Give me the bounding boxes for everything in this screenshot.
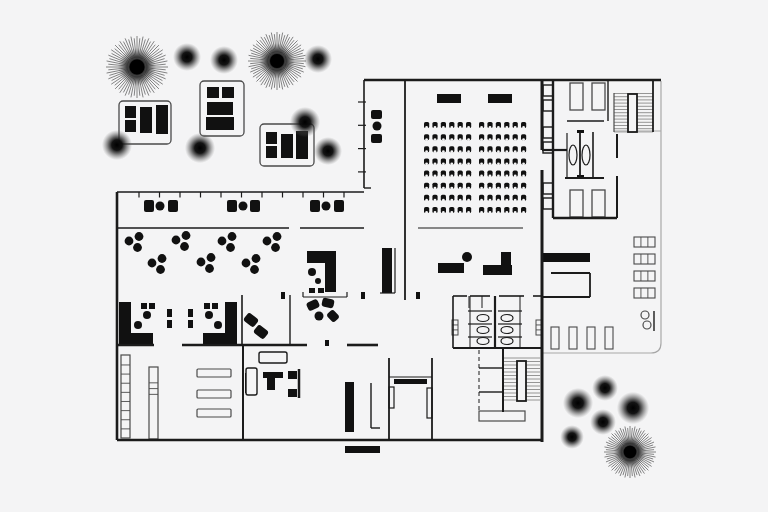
auditorium-seat-notch (467, 138, 470, 141)
toilet (477, 327, 489, 334)
office-desk (267, 378, 275, 390)
auditorium-seat-notch (505, 126, 508, 129)
trefoil-table (135, 232, 144, 241)
outdoor-armchair (266, 146, 277, 158)
auditorium-seat-notch (514, 138, 517, 141)
tree-canopy (314, 137, 342, 165)
patio-table (634, 237, 655, 247)
lounge-table (456, 266, 463, 273)
stage-table (437, 94, 461, 103)
patio-stool (643, 321, 651, 329)
auditorium-seat-notch (450, 211, 453, 214)
closet (543, 198, 553, 209)
auditorium-seat-notch (522, 138, 525, 141)
corridor-chair (334, 200, 344, 212)
l-sofa (119, 333, 153, 344)
trefoil-table (182, 231, 191, 240)
auditorium-seat-notch (434, 187, 437, 190)
trefoil-table (205, 264, 214, 273)
auditorium-seat-notch (459, 187, 462, 190)
auditorium-seat-notch (505, 199, 508, 202)
auditorium-seat-notch (459, 162, 462, 165)
tree-canopy (560, 425, 584, 449)
storage-shelf (121, 355, 130, 438)
office-chair (288, 389, 297, 397)
trefoil-table (156, 265, 165, 274)
trefoil-table (226, 243, 235, 252)
auditorium-seat-notch (514, 175, 517, 178)
auditorium-seat-notch (434, 211, 437, 214)
lounge-table (462, 252, 472, 262)
auditorium-seat-notch (434, 150, 437, 153)
auditorium-seat-notch (467, 150, 470, 153)
closet (543, 127, 553, 138)
reception-stool (318, 288, 324, 293)
auditorium-seat-notch (459, 199, 462, 202)
tilted-seat (306, 298, 321, 311)
stair-landing (479, 411, 525, 421)
stair-upper-rail (628, 94, 637, 132)
auditorium-seat-notch (505, 211, 508, 214)
tilted-seat (321, 297, 335, 308)
auditorium-seat-notch (497, 150, 500, 153)
auditorium-seat-notch (489, 138, 492, 141)
auditorium-seat-notch (505, 138, 508, 141)
auditorium-seat-notch (480, 150, 483, 153)
tree-canopy (592, 375, 618, 401)
auditorium-seat-notch (442, 162, 445, 165)
outdoor-table (207, 102, 233, 115)
entry-mat (345, 446, 380, 453)
auditorium-seat-notch (450, 162, 453, 165)
auditorium-seat-notch (459, 211, 462, 214)
auditorium-seat-notch (434, 199, 437, 202)
toilet (501, 315, 513, 322)
stair-lower-rail (517, 361, 526, 401)
auditorium-seat-notch (459, 126, 462, 129)
trefoil-table (180, 242, 189, 251)
pantry-counter (394, 379, 427, 384)
side-table (149, 303, 155, 309)
closet (543, 142, 553, 153)
stage-table (488, 94, 512, 103)
auditorium-seat-notch (505, 187, 508, 190)
corridor-chair (144, 200, 154, 212)
l-sofa (203, 333, 237, 344)
toilet (501, 338, 513, 345)
auditorium-seat-notch (425, 211, 428, 214)
auditorium-seat-notch (505, 150, 508, 153)
storage-table (197, 409, 231, 417)
lobby-table (373, 122, 382, 131)
outdoor-sofa (206, 117, 234, 130)
auditorium-seat-notch (505, 175, 508, 178)
trefoil-table (158, 254, 167, 263)
tree-canopy (173, 43, 201, 71)
auditorium-seat-notch (497, 126, 500, 129)
trefoil-table (207, 253, 216, 262)
trefoil-table (133, 243, 142, 252)
corridor-chair (168, 200, 178, 212)
tree-canopy (563, 388, 593, 418)
auditorium-seat-notch (480, 187, 483, 190)
office-chair (288, 371, 297, 379)
patio-planter (587, 327, 595, 349)
auditorium-seat-notch (480, 138, 483, 141)
auditorium-seat-notch (497, 187, 500, 190)
corridor-table (156, 202, 165, 211)
auditorium-seat-notch (480, 162, 483, 165)
lobby-chair (371, 134, 382, 143)
auditorium-seat-notch (467, 199, 470, 202)
auditorium-seat-notch (497, 211, 500, 214)
auditorium-seat-notch (522, 150, 525, 153)
auditorium-seat-notch (522, 162, 525, 165)
auditorium-seat-notch (434, 175, 437, 178)
tree-canopy (304, 45, 332, 73)
outdoor-table (281, 134, 293, 158)
auditorium-seat-notch (514, 150, 517, 153)
side-table (188, 309, 193, 317)
column (281, 292, 285, 299)
tree-canopy (210, 46, 238, 74)
floorplan-drawing (0, 0, 768, 512)
toilet (582, 145, 590, 165)
toilet (477, 315, 489, 322)
side-table (188, 320, 193, 328)
closet (543, 183, 553, 194)
tree-canopy (290, 107, 320, 137)
patio-planter (551, 327, 559, 349)
corridor-chair (227, 200, 237, 212)
auditorium-seat-notch (522, 187, 525, 190)
auditorium-seat-notch (442, 138, 445, 141)
auditorium-seat-notch (497, 138, 500, 141)
toilet (569, 145, 577, 165)
auditorium-seat-notch (450, 138, 453, 141)
auditorium-seat-notch (467, 187, 470, 190)
auditorium-seat-notch (442, 187, 445, 190)
dorm-bed (570, 190, 583, 217)
coffee-table (134, 321, 142, 329)
seat-round (315, 312, 324, 321)
coffee-table (143, 311, 151, 319)
auditorium-seat-notch (425, 187, 428, 190)
dorm-bed (570, 83, 583, 110)
auditorium-seat-notch (425, 175, 428, 178)
outdoor-sofa (156, 105, 168, 134)
side-table (141, 303, 147, 309)
auditorium-seat-notch (434, 162, 437, 165)
auditorium-seat-notch (442, 199, 445, 202)
auditorium-seat-notch (442, 126, 445, 129)
tree-canopy (590, 409, 616, 435)
toilet (477, 338, 489, 345)
column (325, 340, 329, 346)
auditorium-seat-notch (480, 211, 483, 214)
auditorium-seat-notch (489, 175, 492, 178)
tree-canopy (617, 392, 649, 424)
auditorium-seat-notch (489, 162, 492, 165)
trefoil-table (228, 232, 237, 241)
auditorium-seat-notch (489, 211, 492, 214)
patio-table (634, 288, 655, 298)
lounge-sofa (501, 252, 511, 275)
auditorium-seat-notch (459, 150, 462, 153)
reception-stool (308, 268, 316, 276)
corridor-table (322, 202, 331, 211)
auditorium-seat-notch (480, 126, 483, 129)
auditorium-seat-notch (505, 162, 508, 165)
patio-table (634, 271, 655, 281)
auditorium-seat-notch (425, 150, 428, 153)
auditorium-seat-notch (514, 199, 517, 202)
coffee-table (205, 311, 213, 319)
shelf-unit (382, 248, 392, 293)
reception-counter (325, 251, 336, 292)
storage-table (197, 390, 231, 398)
reception-stool (315, 278, 321, 284)
auditorium-seat-notch (497, 162, 500, 165)
auditorium-seat-notch (442, 175, 445, 178)
outdoor-armchair (207, 87, 219, 98)
outdoor-armchair (222, 87, 234, 98)
side-table (212, 303, 218, 309)
auditorium-seat-notch (522, 175, 525, 178)
lobby-chair (371, 110, 382, 119)
patio-bench (543, 253, 590, 262)
trefoil-table (125, 237, 134, 246)
patio-planter (605, 327, 613, 349)
auditorium-seat-notch (522, 126, 525, 129)
storage-cabinet (345, 382, 354, 432)
auditorium-seat-notch (459, 138, 462, 141)
patio-planter (569, 327, 577, 349)
tree-ray-trunk (130, 60, 145, 75)
auditorium-seat-notch (442, 211, 445, 214)
auditorium-seat-notch (514, 126, 517, 129)
auditorium-seat-notch (489, 199, 492, 202)
auditorium-seat-notch (450, 150, 453, 153)
column (416, 292, 420, 299)
dorm-bed (592, 190, 605, 217)
trefoil-table (271, 243, 280, 252)
auditorium-seat-notch (434, 126, 437, 129)
tilted-seat (253, 324, 269, 340)
auditorium-seat-notch (489, 187, 492, 190)
office-armchair (246, 368, 257, 395)
tilted-seat (326, 309, 340, 323)
auditorium-seat-notch (489, 126, 492, 129)
auditorium-seat-notch (522, 199, 525, 202)
outdoor-armchair (266, 132, 277, 144)
reception-stool (309, 288, 315, 293)
trefoil-table (242, 259, 251, 268)
trefoil-table (148, 259, 157, 268)
auditorium-seat-notch (514, 211, 517, 214)
tree-ray-trunk (624, 446, 636, 458)
tilted-seat (243, 312, 259, 328)
side-table (204, 303, 210, 309)
storage-table (197, 369, 231, 377)
trefoil-table (218, 237, 227, 246)
auditorium-seat-notch (480, 175, 483, 178)
trefoil-table (273, 232, 282, 241)
auditorium-seat-notch (497, 175, 500, 178)
auditorium-seat-notch (489, 150, 492, 153)
patio-table (634, 254, 655, 264)
outdoor-armchair (125, 120, 136, 132)
trefoil-table (263, 237, 272, 246)
trefoil-table (197, 258, 206, 267)
auditorium-seat-notch (514, 187, 517, 190)
outdoor-armchair (125, 106, 136, 118)
auditorium-seat-notch (467, 175, 470, 178)
side-table (167, 309, 172, 317)
auditorium-seat-notch (450, 126, 453, 129)
auditorium-seat-notch (467, 162, 470, 165)
office-sofa (259, 352, 287, 363)
trefoil-table (250, 265, 259, 274)
auditorium-seat-notch (425, 162, 428, 165)
auditorium-seat-notch (425, 138, 428, 141)
outdoor-table (140, 107, 152, 133)
side-table (167, 320, 172, 328)
tree-ray-trunk (270, 54, 284, 68)
auditorium-seat-notch (434, 138, 437, 141)
patio-stool (641, 311, 649, 319)
auditorium-seat-notch (450, 175, 453, 178)
auditorium-seat-notch (450, 199, 453, 202)
toilet (501, 327, 513, 334)
office-desk (263, 372, 283, 378)
storage-shelf (149, 367, 158, 439)
auditorium-seat-notch (480, 199, 483, 202)
corridor-chair (310, 200, 320, 212)
auditorium-seat-notch (522, 211, 525, 214)
tree-canopy (102, 130, 132, 160)
auditorium-seat-notch (459, 175, 462, 178)
coffee-table (214, 321, 222, 329)
column (361, 292, 365, 299)
auditorium-seat-notch (467, 211, 470, 214)
dorm-bed (592, 83, 605, 110)
auditorium-seat-notch (467, 126, 470, 129)
tree-canopy (185, 133, 215, 163)
auditorium-seat-notch (514, 162, 517, 165)
auditorium-seat-notch (425, 199, 428, 202)
auditorium-seat-notch (442, 150, 445, 153)
closet (543, 85, 553, 96)
closet (543, 100, 553, 111)
auditorium-seat-notch (497, 199, 500, 202)
corridor-chair (250, 200, 260, 212)
auditorium-seat-notch (450, 187, 453, 190)
corridor-table (239, 202, 248, 211)
trefoil-table (252, 254, 261, 263)
auditorium-seat-notch (425, 126, 428, 129)
floorplan-page (0, 0, 768, 512)
trefoil-table (172, 236, 181, 245)
